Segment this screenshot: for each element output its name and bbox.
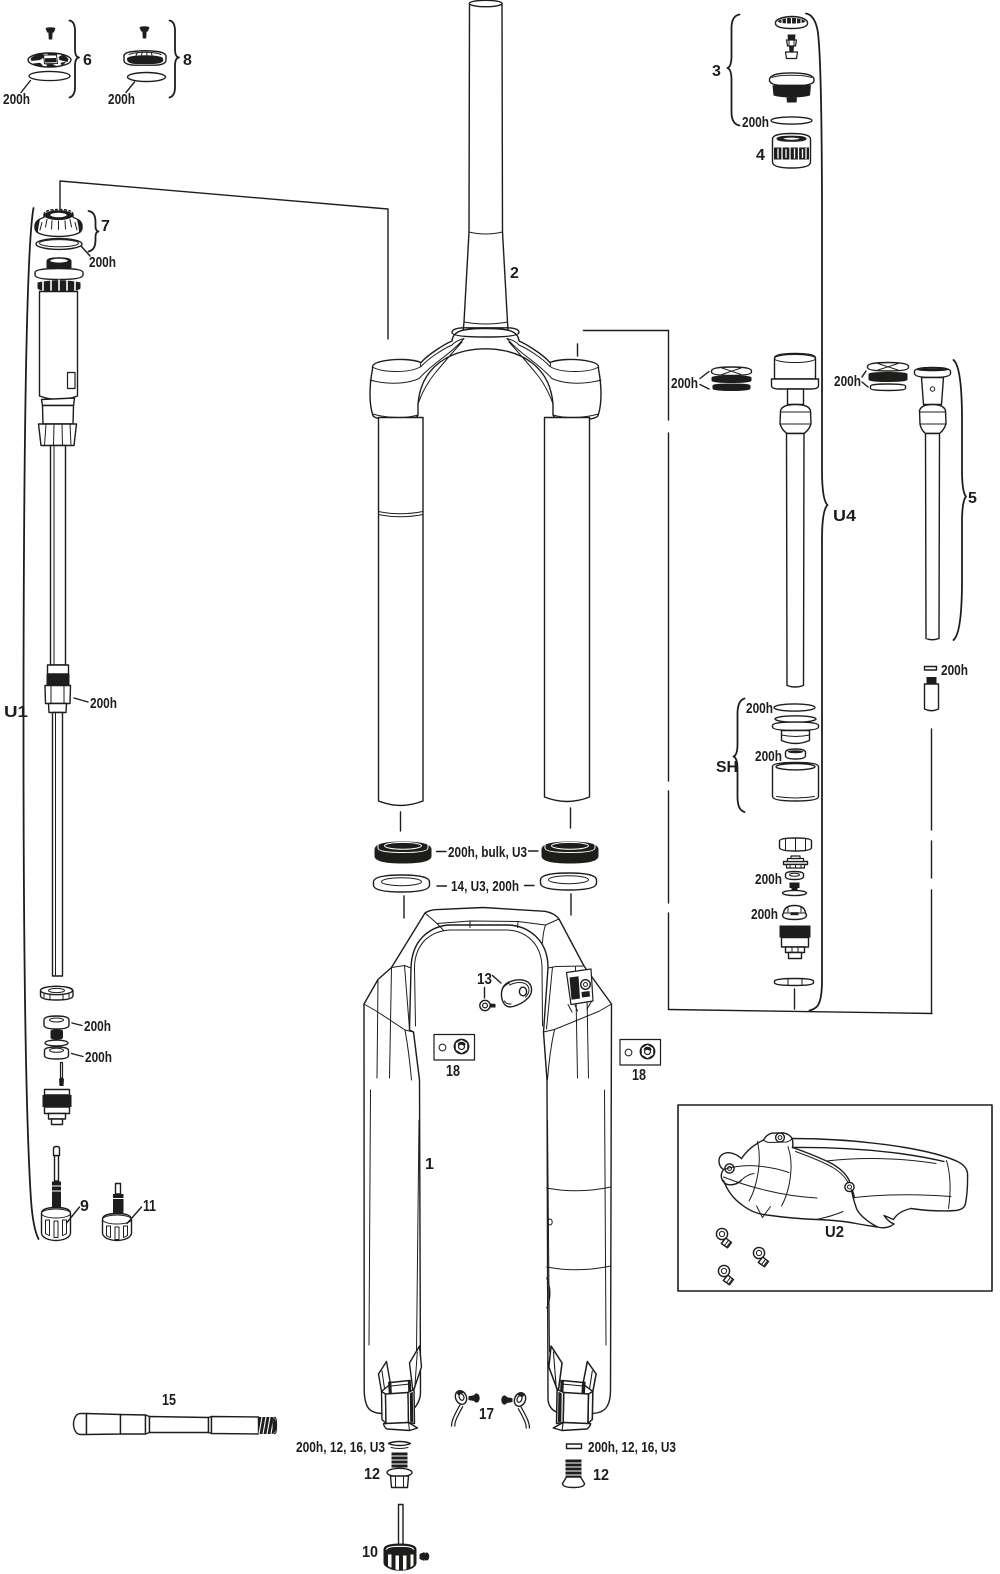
svg-text:2: 2 (510, 265, 519, 282)
svg-text:6: 6 (83, 52, 92, 69)
svg-text:1: 1 (425, 1156, 434, 1173)
svg-text:4: 4 (756, 147, 765, 164)
svg-text:200h: 200h (941, 662, 968, 679)
svg-text:14, U3, 200h: 14, U3, 200h (451, 878, 519, 895)
svg-text:12: 12 (593, 1467, 609, 1484)
svg-text:8: 8 (183, 52, 192, 69)
svg-text:200h: 200h (751, 906, 778, 923)
svg-text:200h, 12, 16, U3: 200h, 12, 16, U3 (588, 1439, 676, 1456)
svg-text:SH: SH (716, 759, 738, 776)
svg-text:12: 12 (364, 1466, 380, 1483)
svg-text:5: 5 (968, 490, 977, 507)
svg-text:200h: 200h (85, 1049, 112, 1066)
svg-text:200h: 200h (89, 254, 116, 271)
svg-text:11: 11 (143, 1198, 156, 1215)
svg-text:200h: 200h (3, 91, 30, 108)
svg-text:18: 18 (632, 1067, 646, 1084)
svg-text:200h: 200h (90, 695, 117, 712)
svg-text:200h: 200h (108, 91, 135, 108)
svg-text:U1: U1 (4, 704, 28, 721)
svg-text:18: 18 (446, 1063, 460, 1080)
svg-text:3: 3 (712, 63, 721, 80)
svg-text:200h, bulk, U3: 200h, bulk, U3 (448, 844, 527, 861)
svg-text:15: 15 (162, 1392, 176, 1409)
svg-text:17: 17 (479, 1406, 494, 1423)
svg-text:200h: 200h (755, 871, 782, 888)
svg-text:200h: 200h (755, 748, 782, 765)
svg-text:200h: 200h (671, 375, 698, 392)
svg-text:200h, 12, 16, U3: 200h, 12, 16, U3 (296, 1439, 385, 1456)
svg-text:200h: 200h (742, 114, 769, 131)
svg-text:200h: 200h (834, 373, 861, 390)
svg-text:200h: 200h (746, 700, 773, 717)
svg-text:7: 7 (101, 218, 110, 235)
svg-text:U4: U4 (833, 508, 856, 525)
svg-text:9: 9 (80, 1198, 89, 1215)
svg-text:U2: U2 (825, 1224, 844, 1241)
svg-text:200h: 200h (84, 1018, 111, 1035)
svg-text:10: 10 (362, 1544, 378, 1561)
svg-text:13: 13 (477, 971, 492, 988)
